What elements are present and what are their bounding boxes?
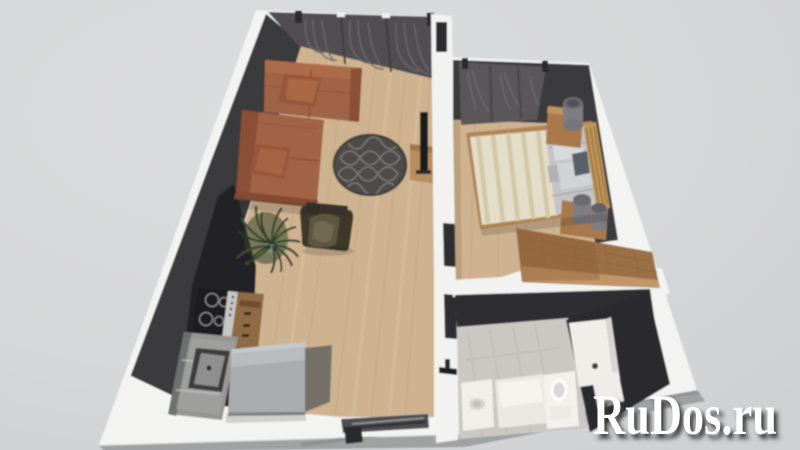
- svg-text:RuDos.ru: RuDos.ru: [593, 384, 777, 447]
